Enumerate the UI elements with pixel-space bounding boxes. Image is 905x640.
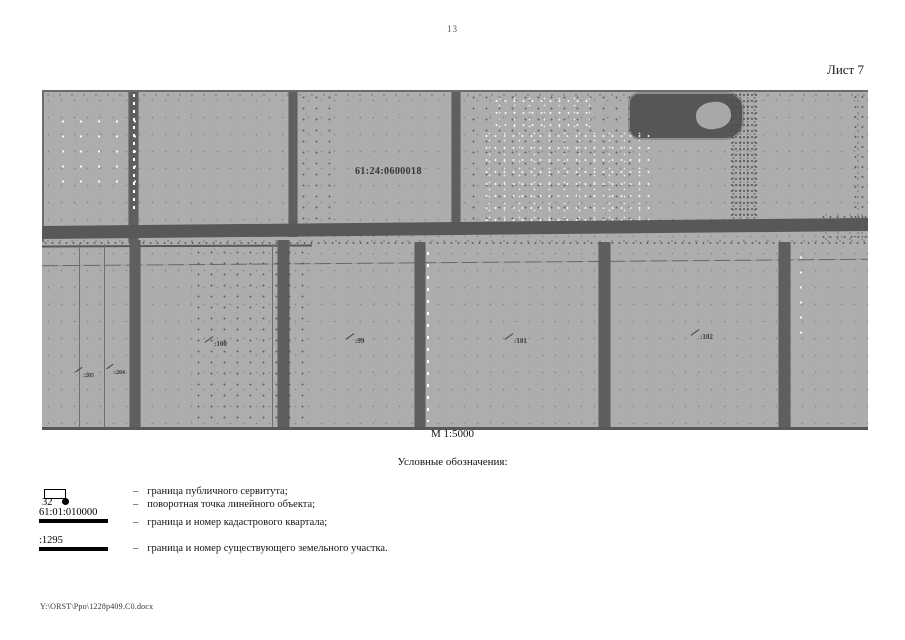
- map-cadastral-quarter-label: 61:24:0600018: [355, 166, 422, 177]
- parcel-label: :99: [355, 330, 364, 348]
- quarter-boundary-symbol: 61:01:010000: [39, 507, 108, 523]
- dither-field: [297, 92, 337, 232]
- parcel-line: [104, 244, 105, 427]
- road-stripe: [599, 242, 610, 427]
- leader-line: [691, 329, 700, 336]
- point-marker-icon: [62, 498, 69, 505]
- dash: –: [133, 499, 138, 510]
- map-scale-label: М 1:5000: [0, 428, 905, 440]
- document-page: { "page": { "number": "13", "sheet_label…: [0, 0, 905, 640]
- road-centerline-dashes: [427, 252, 429, 422]
- leader-line: [505, 333, 514, 340]
- road-stripe: [452, 92, 460, 232]
- white-speckle-field: [492, 95, 592, 128]
- dither-field: [192, 247, 307, 422]
- dash: –: [133, 517, 138, 528]
- parcel-boundary-symbol: :1295: [39, 535, 108, 551]
- road-stripe: [415, 242, 425, 427]
- blob-hole: [694, 100, 732, 132]
- dash: –: [133, 543, 138, 554]
- white-speckle-field: [482, 130, 652, 235]
- legend-item-description: –граница и номер кадастрового квартала;: [133, 517, 327, 528]
- parcel-label: :101: [514, 330, 527, 348]
- parcel-line: [79, 244, 80, 427]
- band-end-noise: [820, 212, 868, 242]
- road-stripe: [130, 240, 140, 427]
- legend-item-description: –граница и номер существующего земельног…: [133, 543, 388, 554]
- legend-title: Условные обозначения:: [0, 456, 905, 468]
- map-left-edge: [42, 92, 44, 242]
- parcel-label: :204: [114, 361, 125, 379]
- band-edge-noise: [42, 238, 868, 246]
- quarter-number: 61:01:010000: [39, 507, 108, 518]
- cadastral-boundary-band: [42, 218, 868, 239]
- parcel-label: :102: [700, 326, 713, 344]
- cadastral-map-image: 61:24:0600018 :205 :204 :100 :99 :101 :1…: [42, 90, 868, 430]
- white-speckle-field: [792, 250, 806, 335]
- road-stripe: [779, 242, 790, 427]
- parcel-label: :100: [214, 333, 227, 351]
- legend-item-description: –поворотная точка линейного объекта;: [133, 499, 315, 510]
- dash: –: [133, 486, 138, 497]
- parcel-number: :1295: [39, 535, 108, 546]
- leader-line: [346, 333, 355, 340]
- leader-line: [106, 364, 113, 370]
- dither-band: [730, 92, 758, 230]
- white-speckle-field: [54, 114, 139, 189]
- footer-file-path: Y:\ORST\Ppo\1228p409.C0.docx: [40, 602, 153, 611]
- thick-line-icon: [39, 547, 108, 551]
- road-stripe: [289, 92, 297, 237]
- parcel-label: :205: [83, 364, 94, 382]
- sheet-label: Лист 7: [827, 62, 864, 78]
- legend-item-description: –граница публичного сервитута;: [133, 486, 288, 497]
- survey-line: [42, 259, 868, 266]
- thick-line-icon: [39, 519, 108, 523]
- page-number: 13: [0, 24, 905, 34]
